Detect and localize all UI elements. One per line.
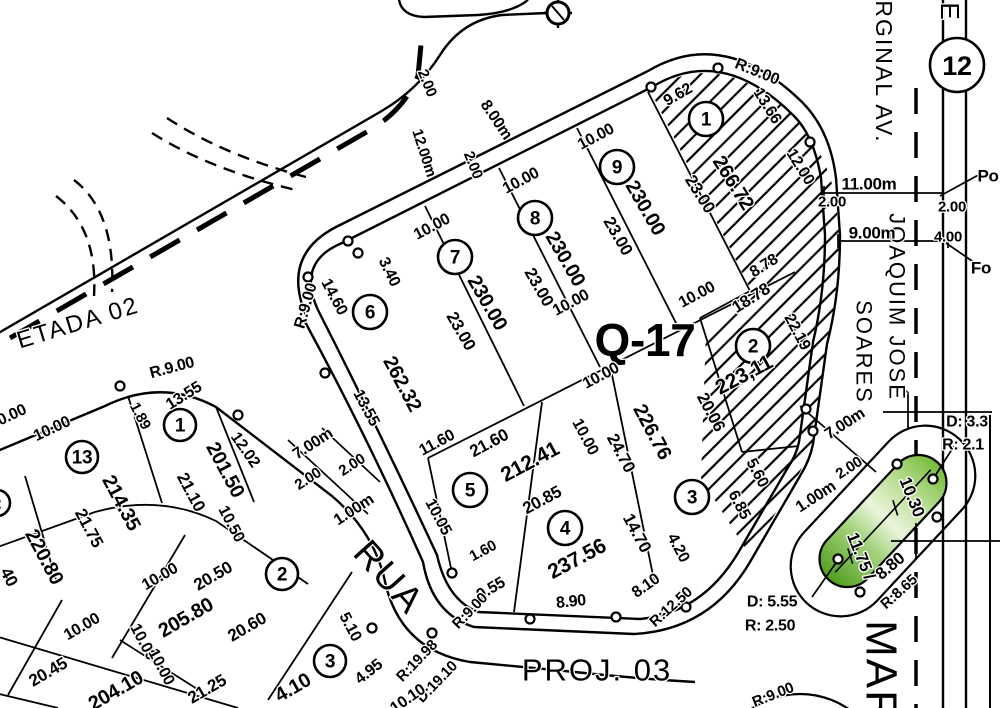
boundary-marker (806, 138, 815, 147)
lot-number: 2 (277, 565, 287, 586)
diameter-label: D: 5.55 (747, 594, 798, 611)
dim-label: 8.90 (555, 592, 587, 612)
boundary-marker (893, 460, 902, 469)
boundary-marker (809, 427, 818, 436)
street-letter-e: E (935, 2, 965, 21)
boundary-marker (234, 411, 243, 420)
boundary-marker (304, 273, 313, 282)
boundary-marker (368, 624, 377, 633)
width-label: 2.00 (818, 194, 846, 211)
boundary-marker (428, 629, 437, 638)
ref-label: Fo (971, 259, 991, 278)
plat-map-container: Q-17 RUA PROJ. 03 ETADA 02 RGINAL AV. MA… (0, 0, 1000, 708)
boundary-marker (354, 249, 363, 258)
street-marginal-av: RGINAL AV. (871, 0, 897, 143)
ref-label: Po (977, 167, 998, 186)
boundary-marker (344, 237, 353, 246)
boundary-marker (933, 513, 942, 522)
radius-label: R: 2.50 (745, 618, 796, 635)
boundary-marker (647, 83, 656, 92)
plat-map: Q-17 RUA PROJ. 03 ETADA 02 RGINAL AV. MA… (0, 0, 1000, 708)
boundary-marker (448, 569, 457, 578)
boundary-marker (116, 382, 125, 391)
lot-number: 13 (72, 448, 93, 469)
radius-label: R: 2.1 (942, 437, 984, 454)
lot-number: 6 (365, 303, 375, 324)
lot-number: 4 (560, 519, 571, 540)
boundary-marker (321, 369, 330, 378)
road-block-number: 12 (942, 51, 971, 81)
width-label: 2.00 (938, 199, 966, 216)
lot-number: 3 (325, 652, 335, 673)
boundary-marker (929, 475, 938, 484)
lot-number: 9 (612, 158, 622, 179)
street-proj-03: PROJ. 03 (522, 653, 672, 688)
width-label: 11.00m (842, 175, 897, 194)
diameter-label: D: 3.3 (946, 414, 988, 431)
boundary-marker (714, 64, 723, 73)
boundary-marker (526, 615, 535, 624)
lot-number: 7 (450, 248, 460, 269)
lot-number: 1 (701, 110, 712, 131)
block-title: Q-17 (594, 314, 695, 366)
width-label: 4.00 (934, 229, 962, 246)
lot-number: 2 (0, 496, 1, 513)
boundary-marker (834, 555, 843, 564)
boundary-marker (612, 613, 621, 622)
paper-background (0, 0, 1000, 708)
lot-number: 5 (465, 481, 476, 502)
lot-number: 1 (175, 416, 186, 437)
road-block-circle: 12 (930, 38, 984, 92)
width-label: 9.00m (849, 224, 896, 243)
lot-number: 3 (687, 488, 697, 509)
street-marginal-bottom: MAR (857, 620, 906, 708)
boundary-marker (802, 405, 811, 414)
boundary-marker (856, 588, 865, 597)
lot-number: 8 (530, 209, 540, 230)
street-soares: SOARES (852, 300, 877, 404)
